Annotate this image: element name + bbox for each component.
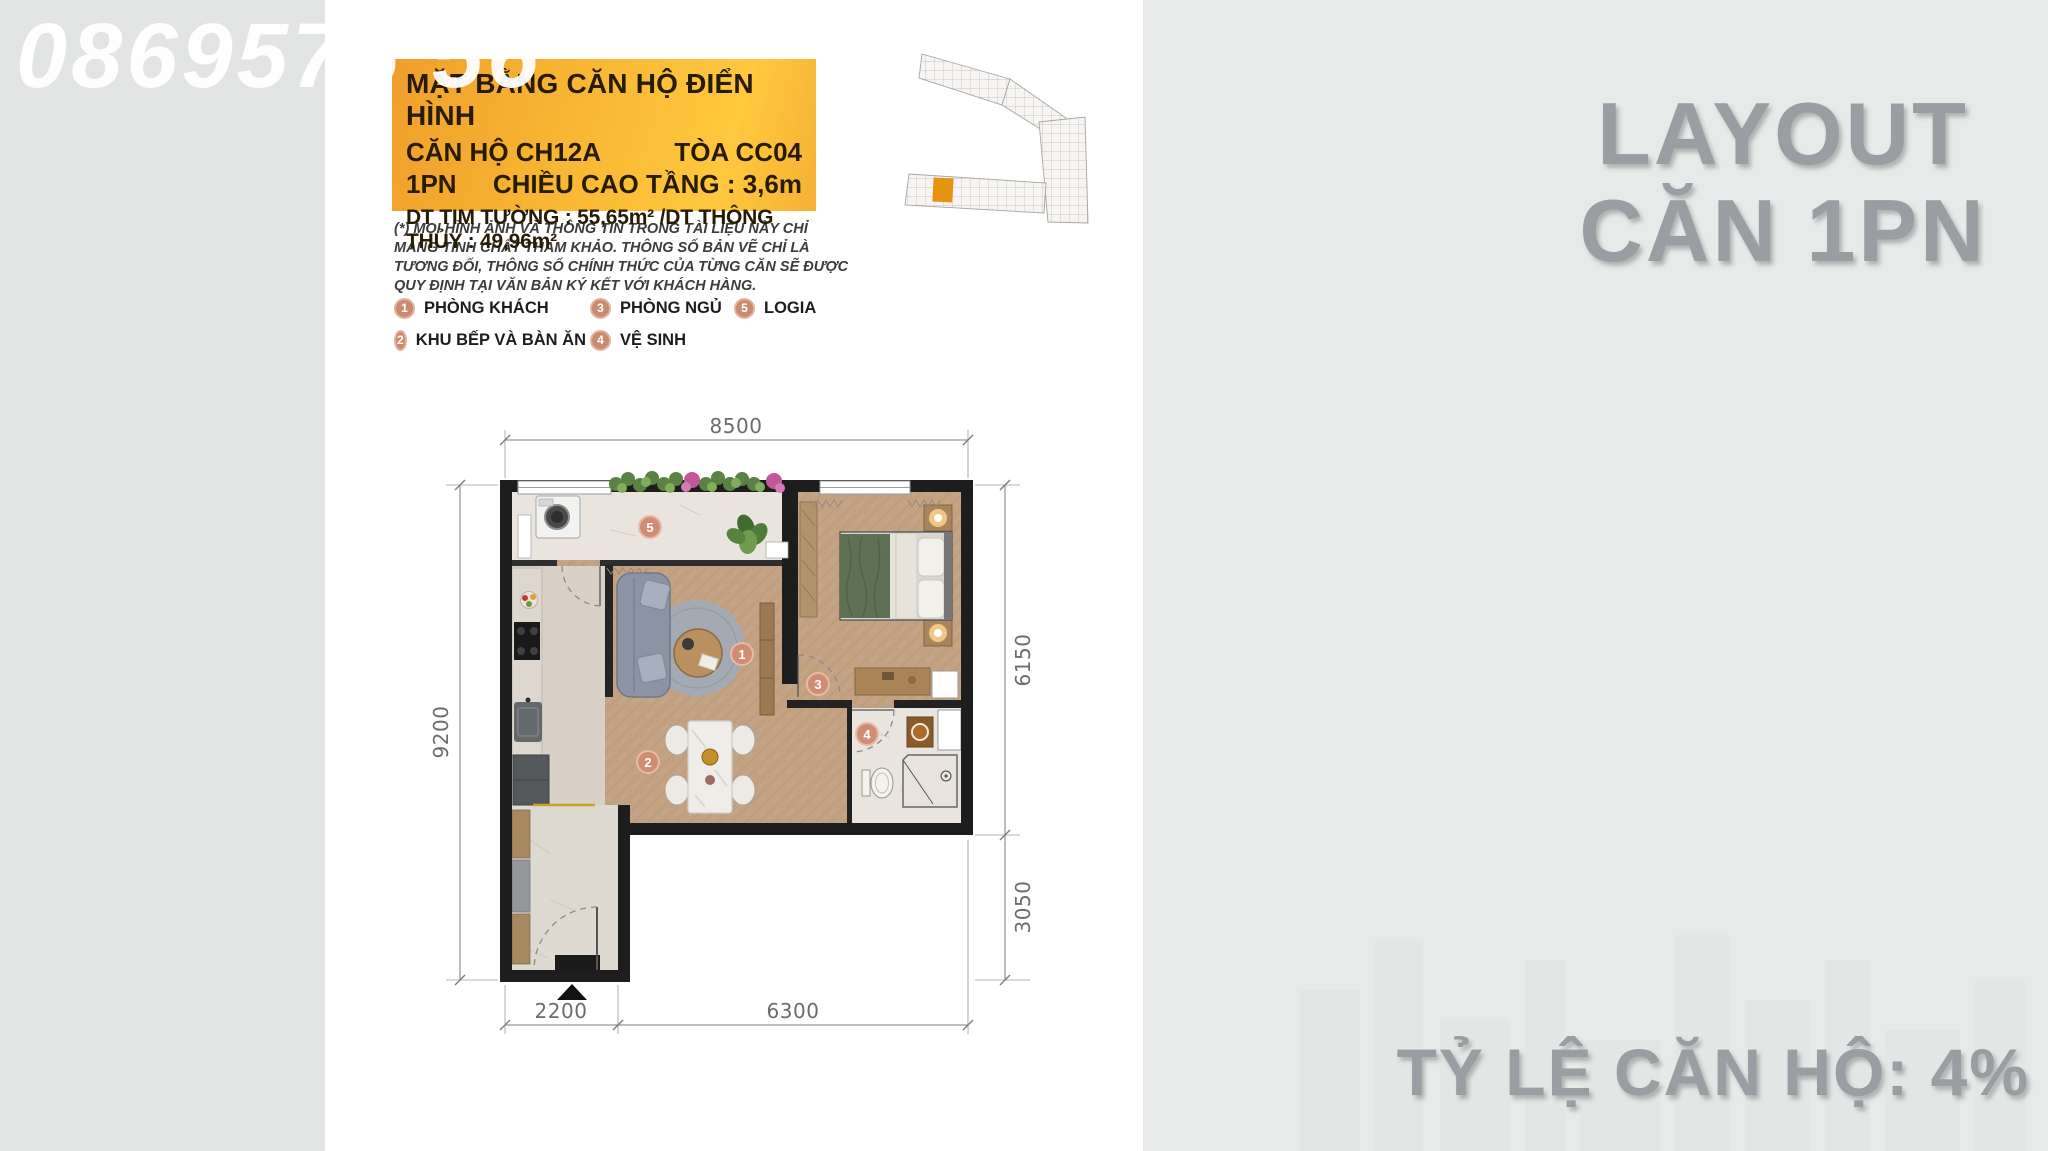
dining-table [688,721,732,813]
legend-item-wc: 4 VỆ SINH [590,328,730,352]
unit-info-box: MẶT BẰNG CĂN HỘ ĐIỂN HÌNH CĂN HỘ CH12A T… [392,59,816,211]
side-title-line2: CĂN 1PN [1568,183,1998,280]
legend-badge-5: 5 [734,298,755,319]
skyline-watermark [1280,900,2048,1151]
room-badge-logia: 5 [639,516,661,538]
unit-ratio-text: TỶ LỆ CĂN HỘ: 4% [1397,1034,2030,1110]
room-badge-bedroom: 3 [807,673,829,695]
room-badge-wc: 4 [856,723,878,745]
poster-root: 0869576 56 MẶT BẰNG CĂN HỘ ĐIỂN HÌNH CĂN… [0,0,2048,1151]
legend-label-bedroom: PHÒNG NGỦ [620,299,722,318]
keyplan-highlighted-unit [932,177,953,202]
kitchen-wall-stub [605,565,613,697]
logia-wall-a [512,560,557,566]
dim-left: 9200 [430,706,453,759]
info-areas: DT TIM TƯỜNG : 55,65m² /DT THÔNG THỦY : … [406,206,802,254]
legend-label-kitchen: KHU BẾP VÀ BÀN ĂN [416,331,586,350]
legend-item-logia: 5 LOGIA [734,296,816,320]
dim-right-lower: 3050 [1011,881,1035,934]
dim-right-upper: 6150 [1011,634,1035,687]
legend-badge-3: 3 [590,298,611,319]
room-badge-living: 1 [731,643,753,665]
entry-mat [555,955,600,970]
floor-plan: 1 2 3 4 5 [430,410,1070,1070]
svg-text:3: 3 [814,677,821,692]
room-legend: 1 PHÒNG KHÁCH 2 KHU BẾP VÀ BÀN ĂN 3 PHÒN… [394,296,816,352]
bathroom-top-wall-b [894,700,961,708]
left-background-strip [0,0,325,1151]
entrance-arrow [557,984,587,1000]
logia-window [518,481,611,494]
bedroom-window [820,481,910,494]
svg-text:5: 5 [646,520,653,535]
keyplan-right-wing [1039,117,1088,223]
legend-item-bedroom: 3 PHÒNG NGỦ [590,296,730,320]
bedroom-bottom-wall [787,700,847,708]
svg-text:4: 4 [863,727,871,742]
info-title: MẶT BẰNG CĂN HỘ ĐIỂN HÌNH [406,68,802,132]
legend-badge-1: 1 [394,298,415,319]
dim-bottom-left: 2200 [535,999,588,1023]
corridor-right-wall [618,805,630,835]
side-title: LAYOUT CĂN 1PN [1568,86,1998,280]
legend-item-kitchen: 2 KHU BẾP VÀ BÀN ĂN [394,328,586,352]
bedroom-wall [782,492,798,684]
keyplan-top-wing [919,54,1010,105]
legend-label-living: PHÒNG KHÁCH [424,299,549,318]
svg-text:1: 1 [738,647,745,662]
dim-bottom-right: 6300 [767,999,820,1023]
tv-console [760,603,774,715]
info-tower: TÒA CC04 [674,137,802,169]
info-unit-code: CĂN HỘ CH12A [406,137,601,169]
bathroom-left-wall [847,708,852,823]
legend-label-logia: LOGIA [764,299,816,318]
info-ceiling-height: CHIỀU CAO TẦNG : 3,6m [493,169,802,201]
keyplan-bottom-wing [905,174,1046,213]
site-key-plan [880,25,1130,245]
bed [840,532,952,620]
svg-text:2: 2 [644,755,651,770]
legend-label-wc: VỆ SINH [620,331,686,350]
legend-item-living: 1 PHÒNG KHÁCH [394,296,586,320]
legend-badge-4: 4 [590,330,611,351]
side-title-line1: LAYOUT [1568,86,1998,183]
room-badge-kitchen: 2 [637,751,659,773]
legend-badge-2: 2 [394,330,407,351]
logia-wall-b [600,560,782,566]
info-bedroom-type: 1PN [406,169,457,201]
toilet-tank [862,770,870,796]
dim-top: 8500 [710,414,763,438]
